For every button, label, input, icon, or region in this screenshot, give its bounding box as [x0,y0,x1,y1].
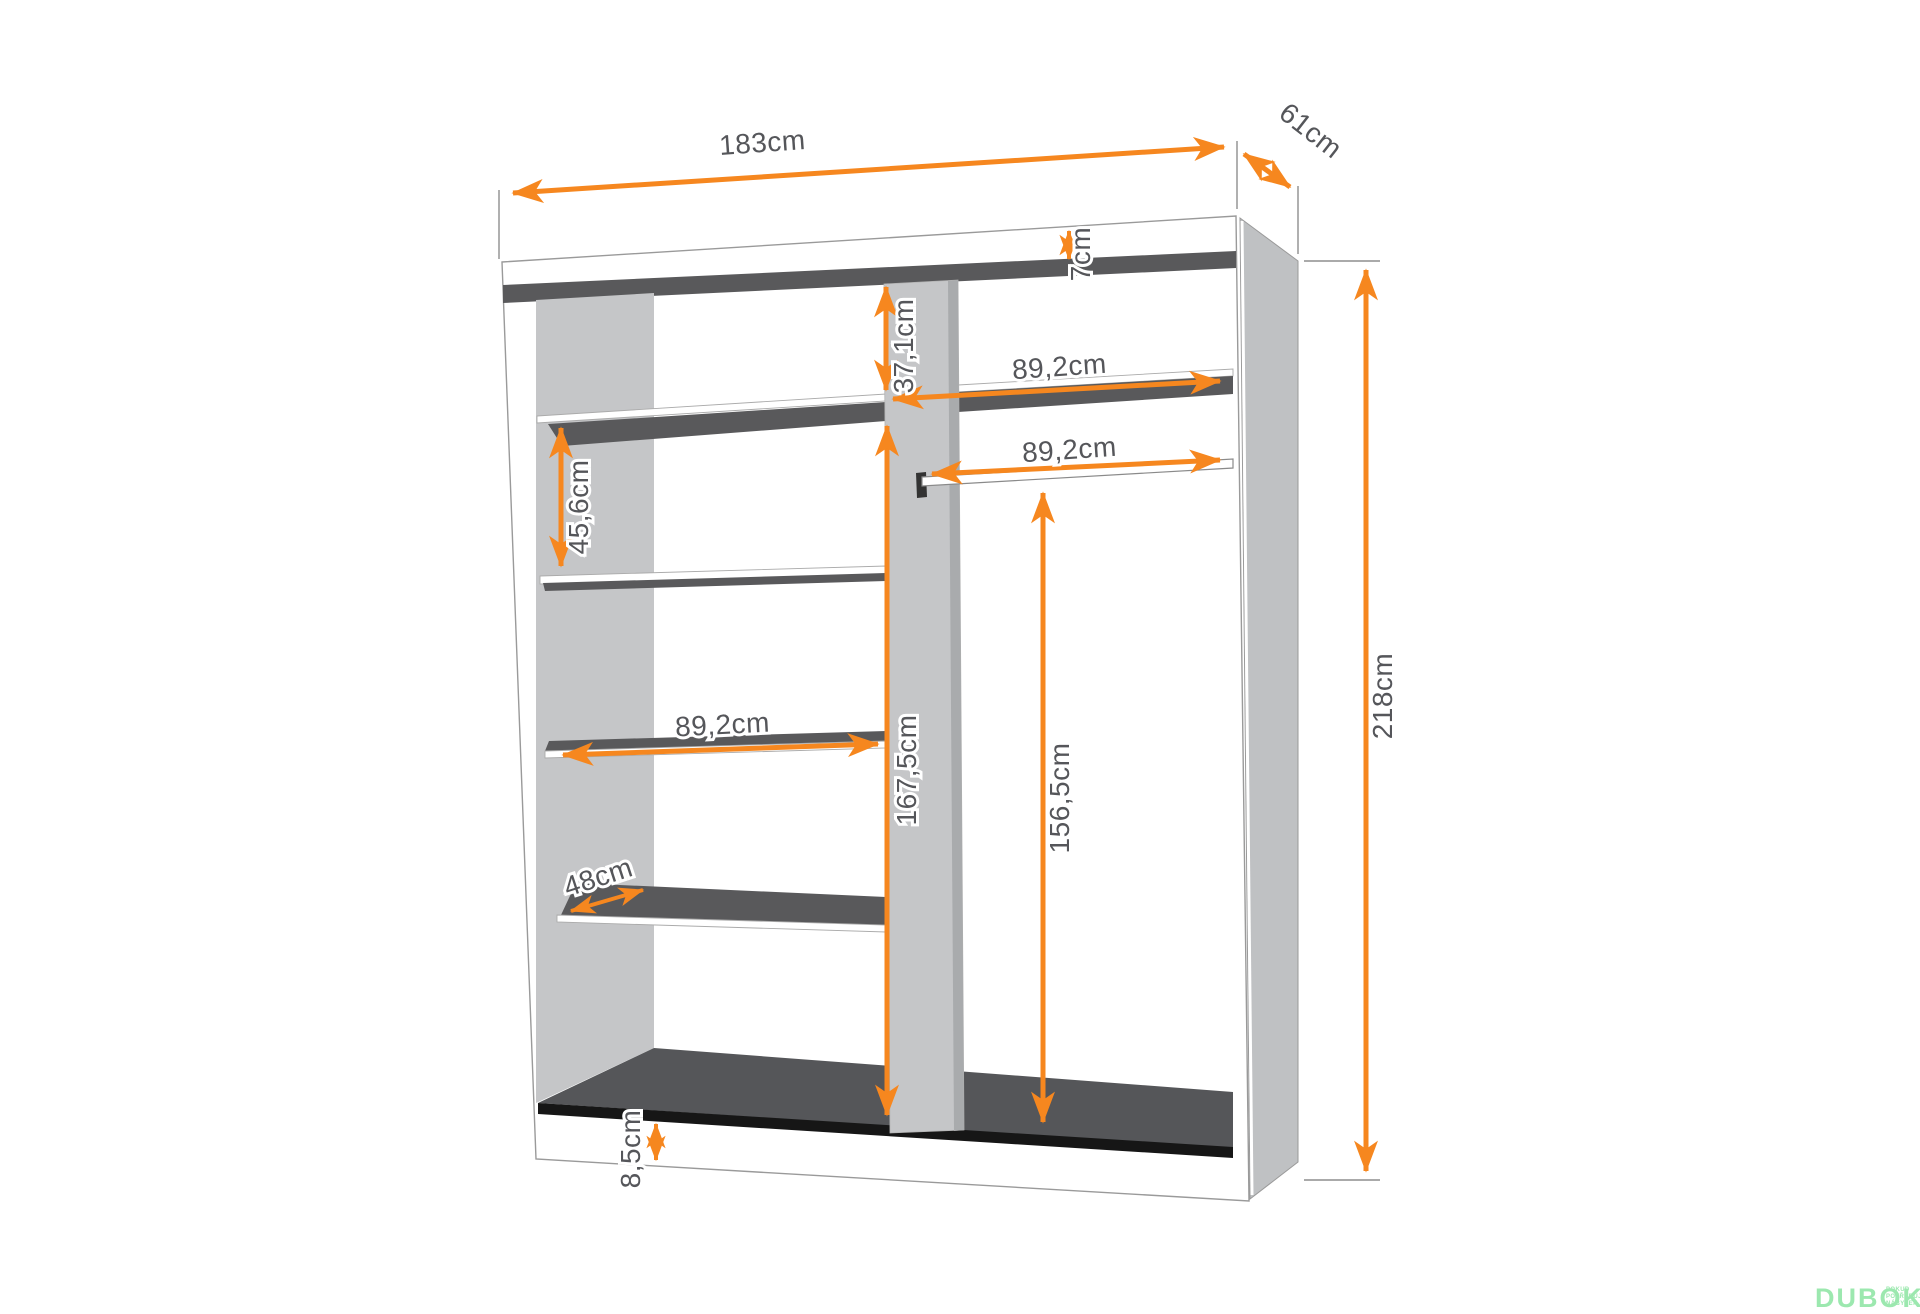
dubok-tagline-line-1: POKUD [1886,1287,1910,1293]
dubok-tagline-line-2: POTŘEBUJETE [1886,1292,1920,1300]
plinth-height-label: 8,5cm [615,1110,646,1189]
top-panel-label: 7cm [1065,227,1096,281]
rod-height-label: 156,5cm [1044,743,1075,854]
wardrobe-drawing: 183cm 61cm 7cm 37,1cm 45,6cm 89,2cm 89,2… [0,0,1920,1314]
inner-width-top-label: 89,2cm [1011,348,1108,386]
depth-arrow [1244,154,1290,187]
right-side-panel [1240,218,1298,1199]
rod-width-label: 89,2cm [1021,431,1118,469]
dubok-logo: DUBOK POKUD POTŘEBUJETE NÁBYTEK [1815,1283,1920,1313]
shelf-gap-label: 45,6cm [563,460,594,555]
divider-height-label: 167,5cm [891,715,922,826]
inner-width-left-label: 89,2cm [674,707,770,743]
dubok-tagline-line-3: NÁBYTEK [1886,1300,1918,1307]
top-section-label: 37,1cm [888,299,919,394]
width-label: 183cm [718,124,806,161]
wardrobe-diagram: 183cm 61cm 7cm 37,1cm 45,6cm 89,2cm 89,2… [0,0,1920,1314]
width-arrow [513,147,1224,193]
total-height-label: 218cm [1367,653,1398,740]
depth-label: 61cm [1274,97,1349,165]
